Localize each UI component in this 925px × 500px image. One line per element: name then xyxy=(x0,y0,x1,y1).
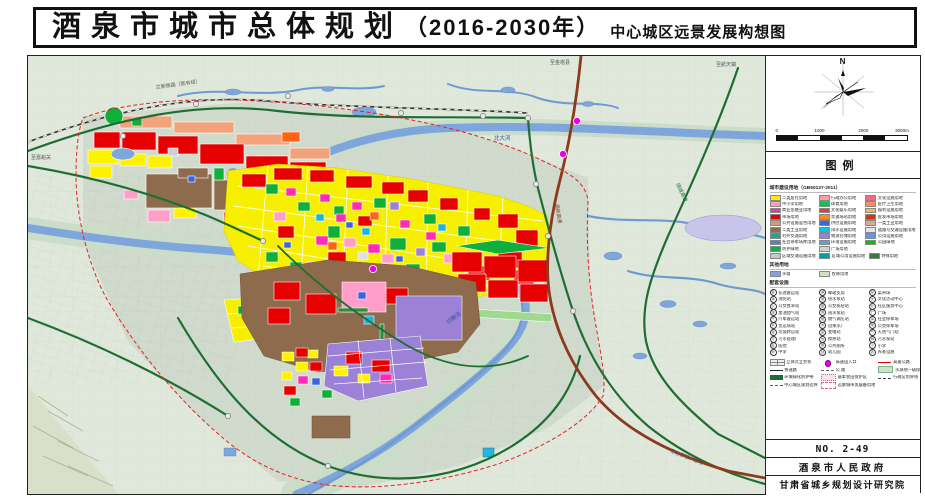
legend-body: 城市建设用地（GB50137-2011） 二类居住用地中小学用地商业金融业用地市… xyxy=(766,179,920,437)
landuse-header: 城市建设用地（GB50137-2011） xyxy=(770,184,916,193)
legend-label: 二类工业用地 xyxy=(782,228,807,232)
facility-legend-item: 广广场 xyxy=(869,309,916,316)
facility-label: 消防站 xyxy=(778,297,791,301)
facility-label: 养老设施 xyxy=(878,350,895,354)
legend-swatch xyxy=(865,214,876,220)
line-legend-label: 公 路 xyxy=(836,368,846,372)
legend-label: 公用设施用地 xyxy=(878,234,903,238)
dark-green-band-swatch xyxy=(770,375,783,380)
facility-legend-item: 公公交首末站 xyxy=(770,303,817,310)
line-legend-item: 远景城市发展备用地 xyxy=(821,381,876,389)
legend-label: 市场用地 xyxy=(782,215,799,219)
facility-label: 小学 xyxy=(878,344,886,348)
title-year-range: （2016-2030年） xyxy=(405,17,600,39)
regional-landuse-row: 区域交通设施用地区域公用设施用地特殊用地 xyxy=(770,253,916,259)
line-legend-item: 高速公路 xyxy=(878,359,919,367)
scale-tick-labels: 0100020003000m xyxy=(776,128,908,135)
line-legend-item: 基本农田保护区 xyxy=(821,374,876,382)
page-title: 酒泉市城市总体规划 xyxy=(52,13,403,42)
pink-dash-box-swatch xyxy=(821,382,836,389)
legend-swatch xyxy=(819,208,830,214)
map-label: 北大河 xyxy=(494,134,511,142)
map-label: 至金塔县 xyxy=(550,59,570,66)
facility-legend-item: 消消防站 xyxy=(770,296,817,303)
facility-label: 医院 xyxy=(778,344,786,348)
plan-sheet: 酒泉市城市总体规划 （2016-2030年） 中心城区远景发展构想图 xyxy=(0,0,925,500)
legend-swatch xyxy=(819,195,830,201)
scale-tick: 3000m xyxy=(895,128,909,133)
map-canvas: 兰新铁路（既有线）北大河讨赖河至嘉峪关至金塔县至航天镇酒航高速绕城高速至总寨镇、… xyxy=(27,55,766,495)
facility-legend-item: 邮邮政支局 xyxy=(819,290,866,297)
legend-item: 区域公用设施用地 xyxy=(819,253,866,259)
legend-label: 水域 xyxy=(782,272,790,276)
legend-swatch xyxy=(865,233,876,239)
line-legend-label: 行政区划界线 xyxy=(893,375,918,379)
compass-section: N 0100020003000m xyxy=(766,56,920,152)
facility-label: 货运场站 xyxy=(778,324,795,328)
facility-legend-item: 排污水泵站 xyxy=(869,336,916,343)
legend-label: 区域交通设施用地 xyxy=(782,254,816,258)
line-legend-item: 立体式立交桥 xyxy=(770,359,818,367)
legend-swatch xyxy=(819,201,830,207)
line-legend-label: 快速路 xyxy=(784,368,797,372)
line-legend-label: 基本农田保护区 xyxy=(838,375,867,379)
facility-legend-item: 中中学 xyxy=(770,349,817,356)
facility-label: 菜市场 xyxy=(878,291,891,295)
scale-tick: 2000 xyxy=(858,128,868,133)
legend-swatch xyxy=(770,253,781,259)
legend-swatch xyxy=(819,227,830,233)
legend-label: 特殊用地 xyxy=(881,254,898,258)
reservoir-icon xyxy=(483,448,494,457)
legend-swatch xyxy=(819,240,830,246)
other-landuse-header: 其他用地 xyxy=(770,261,916,270)
facility-legend-item: 雨雨水泵站 xyxy=(819,309,866,316)
facility-legend-item: 变变电站 xyxy=(819,329,866,336)
scale-tick: 0 xyxy=(776,128,779,133)
pink-dot-band-swatch xyxy=(821,374,836,381)
legend-label: 商业金融业用地 xyxy=(782,208,811,212)
legend-swatch xyxy=(770,227,781,233)
facility-label: 加油加气站 xyxy=(778,311,799,315)
legend-label: 防护绿地 xyxy=(782,247,799,251)
legend-swatch xyxy=(819,233,830,239)
legend-label: 体育用地 xyxy=(831,202,848,206)
facility-legend-item: 垃垃圾转运站 xyxy=(770,329,817,336)
facility-label: 雨水泵站 xyxy=(828,311,845,315)
legend-label: 福利设施用地 xyxy=(878,208,903,212)
legend-label: 物流仓储用地 xyxy=(831,234,856,238)
facility-legend-item: 社社区服务中心 xyxy=(869,303,916,310)
facility-label: 中学 xyxy=(778,350,786,354)
facility-label: 天然气门站 xyxy=(878,330,899,334)
facility-label: 广场 xyxy=(878,311,886,315)
legend-swatch xyxy=(770,220,781,226)
magenta-dot-swatch xyxy=(821,360,834,365)
facility-legend-item: 汽汽车客运站 xyxy=(770,316,817,323)
legend-swatch xyxy=(770,246,781,252)
line-legend-item: 快速路 xyxy=(770,366,818,374)
legend-swatch xyxy=(869,253,880,259)
facility-label: 垃圾转运站 xyxy=(778,330,799,334)
legend-item: 防护绿地 xyxy=(770,246,816,252)
facility-label: 幼儿园 xyxy=(828,350,841,354)
title-bar: 酒泉市城市总体规划 （2016-2030年） 中心城区远景发展构想图 xyxy=(33,7,917,48)
facility-label: 社会停车场 xyxy=(878,317,899,321)
legend-label: 广场用地 xyxy=(831,247,848,251)
legend-swatch xyxy=(865,227,876,233)
facility-legend-item: 油加油加气站 xyxy=(770,309,817,316)
landuse-grid: 二类居住用地中小学用地商业金融业用地市场用地公共设施混合用地二类工业用地对外交通… xyxy=(770,195,916,253)
legend-label: 环境设施用地 xyxy=(831,240,856,244)
legend-label: 社会停车场库用地 xyxy=(782,240,816,244)
government-name: 酒泉市人民政府 xyxy=(766,457,920,476)
side-panel: N 0100020003000m xyxy=(766,55,921,493)
facility-symbol-icon: 幼 xyxy=(819,349,826,356)
facility-label: 公交枢纽站 xyxy=(828,304,849,308)
map-label: 至嘉峪关 xyxy=(31,154,51,161)
line-legend-item: 公 路 xyxy=(821,366,876,374)
legend-label: 文化设施用地 xyxy=(878,196,903,200)
legend-label: 排水设施用地 xyxy=(831,228,856,232)
line-legend-label: 立体式立交桥 xyxy=(786,360,811,364)
legend-item: 公园绿地 xyxy=(865,239,915,245)
line-legend-label: 远景城市发展备用地 xyxy=(838,383,876,387)
facility-legend-item: 气天然气门站 xyxy=(869,329,916,336)
legend-swatch xyxy=(865,220,876,226)
facility-legend-item: 菜菜市场 xyxy=(869,290,916,297)
institute-name: 甘肃省城乡规划设计研究院 xyxy=(766,475,920,494)
facility-label: 公交停车场 xyxy=(878,324,899,328)
legend-label: 对外交通用地 xyxy=(782,234,807,238)
facility-legend-item: 小小学 xyxy=(869,342,916,349)
legend-label: 医疗卫生用地 xyxy=(878,202,903,206)
facility-legend-item: 燃燃气调压站 xyxy=(819,316,866,323)
green-band-swatch xyxy=(878,366,893,373)
facility-label: 换热站 xyxy=(828,337,841,341)
line-legend-item: 中心城区规划边界 xyxy=(770,381,818,389)
facilities-header: 配套设施 xyxy=(770,279,916,288)
compass-rose-icon xyxy=(806,58,880,122)
legend-label: 区域公用设施用地 xyxy=(832,254,866,258)
facility-symbol-icon: 中 xyxy=(770,349,777,356)
facility-legend-item: 医医院 xyxy=(770,342,817,349)
red-line-swatch xyxy=(878,360,891,365)
scale-tick: 1000 xyxy=(814,128,824,133)
legend-label: 农林用地 xyxy=(832,272,849,276)
red-dash-swatch xyxy=(770,383,783,388)
line-legend-label: 中心城区规划边界 xyxy=(784,383,818,387)
legend-label: 批发市场用地 xyxy=(878,215,903,219)
facility-label: 变电站 xyxy=(828,330,841,334)
facility-label: 污水处理厂 xyxy=(778,337,799,341)
facility-legend-item: 枢公交枢纽站 xyxy=(819,303,866,310)
facility-label: 给水泵站 xyxy=(828,297,845,301)
scale-bar: 0100020003000m xyxy=(776,128,908,144)
facility-legend-item: 热换热站 xyxy=(819,336,866,343)
legend-swatch xyxy=(770,233,781,239)
legend-label: 文化娱乐用地 xyxy=(831,208,856,212)
legend-swatch xyxy=(819,220,830,226)
line-legend-item: 水源地一级保护区 xyxy=(878,366,919,374)
facility-legend-item: 养养老设施 xyxy=(869,349,916,356)
legend-label: 公园绿地 xyxy=(878,240,895,244)
facility-legend-item: 文文化活动中心 xyxy=(869,296,916,303)
facility-label: 长途客运站 xyxy=(778,291,799,295)
legend-swatch xyxy=(770,195,781,201)
line-legend-label: 高速公路 xyxy=(893,360,910,364)
legend-swatch xyxy=(865,195,876,201)
lake-lavender xyxy=(685,215,761,241)
facility-legend-item: 水自来水厂 xyxy=(819,323,866,330)
facility-label: 文化活动中心 xyxy=(878,297,903,301)
map-label: 至航天镇 xyxy=(716,61,736,68)
legend-swatch xyxy=(819,271,830,277)
legend-label: 一类工业用地 xyxy=(878,221,903,225)
legend-swatch xyxy=(819,214,830,220)
legend-swatch xyxy=(770,240,781,246)
legend-label: 公共设施混合用地 xyxy=(782,221,816,225)
legend-swatch xyxy=(865,240,876,246)
legend-label: 道路与交通设施用地 xyxy=(878,228,916,232)
line-legend-grid: 立体式立交桥快速路环城绿化防护带中心城区规划边界高速出入口公 路基本农田保护区远… xyxy=(770,359,916,389)
legend-item: 区域交通设施用地 xyxy=(770,253,817,259)
legend-swatch xyxy=(770,208,781,214)
facility-legend-item: 幼幼儿园 xyxy=(819,349,866,356)
legend-label: 中小学用地 xyxy=(782,202,803,206)
facility-legend-item: 污污水处理厂 xyxy=(770,336,817,343)
legend-item: 水域 xyxy=(770,271,817,277)
legend-swatch xyxy=(865,208,876,214)
facility-label: 邮政支局 xyxy=(828,291,845,295)
line-legend-item: 行政区划界线 xyxy=(878,374,919,382)
facility-label: 社区服务中心 xyxy=(878,304,903,308)
facility-legend-item: 泵给水泵站 xyxy=(819,296,866,303)
legend-label: 供应设施用地 xyxy=(831,221,856,225)
facility-symbol-icon: 养 xyxy=(869,349,876,356)
line-legend-label: 高速出入口 xyxy=(836,360,857,364)
scale-bar-segments xyxy=(776,135,908,141)
sheet-number: NO. 2-49 xyxy=(766,439,920,458)
isolated-brown-block xyxy=(312,416,350,438)
other-landuse-row: 水域农林用地 xyxy=(770,271,916,277)
line-legend-item: 高速出入口 xyxy=(821,359,876,367)
facility-label: 污水泵站 xyxy=(878,337,895,341)
facility-legend-item: 厕公共厕所 xyxy=(819,342,866,349)
line-legend-item: 环城绿化防护带 xyxy=(770,374,818,382)
black-line-swatch xyxy=(770,367,783,372)
facility-label: 汽车客运站 xyxy=(778,317,799,321)
facility-label: 公交首末站 xyxy=(778,304,799,308)
legend-swatch xyxy=(770,201,781,207)
facility-label: 自来水厂 xyxy=(828,324,845,328)
legend-item: 广场用地 xyxy=(819,246,863,252)
facility-legend-item: 停社会停车场 xyxy=(869,316,916,323)
line-legend-label: 环城绿化防护带 xyxy=(784,375,813,379)
legend-swatch xyxy=(865,201,876,207)
legend-swatch xyxy=(770,214,781,220)
line-legend-label: 水源地一级保护区 xyxy=(895,368,919,372)
legend-title: 图例 xyxy=(766,151,920,179)
facility-label: 燃气调压站 xyxy=(828,317,849,321)
legend-swatch xyxy=(819,246,830,252)
legend-swatch xyxy=(770,271,781,277)
legend-item: 特殊用地 xyxy=(869,253,916,259)
title-subtitle: 中心城区远景发展构想图 xyxy=(610,21,786,45)
facility-legend-item: 货货运场站 xyxy=(770,323,817,330)
facility-label: 公共厕所 xyxy=(828,344,845,348)
legend-label: 交通场站用地 xyxy=(831,215,856,219)
legend-label: 二类居住用地 xyxy=(782,196,807,200)
facility-legend-item: 场公交停车场 xyxy=(869,323,916,330)
legend-swatch xyxy=(819,253,830,259)
gray-dash-swatch xyxy=(821,367,834,372)
interchange-swatch xyxy=(770,359,785,366)
facilities-grid: 客长途客运站消消防站公公交首末站油加油加气站汽汽车客运站货货运场站垃垃圾转运站污… xyxy=(770,290,916,356)
map-svg: 兰新铁路（既有线）北大河讨赖河至嘉峪关至金塔县至航天镇酒航高速绕城高速至总寨镇、… xyxy=(28,56,765,494)
facility-legend-item: 客长途客运站 xyxy=(770,290,817,297)
legend-item: 农林用地 xyxy=(819,271,866,277)
legend-label: 行政办公用地 xyxy=(831,196,856,200)
dash-dot-swatch xyxy=(878,375,891,380)
